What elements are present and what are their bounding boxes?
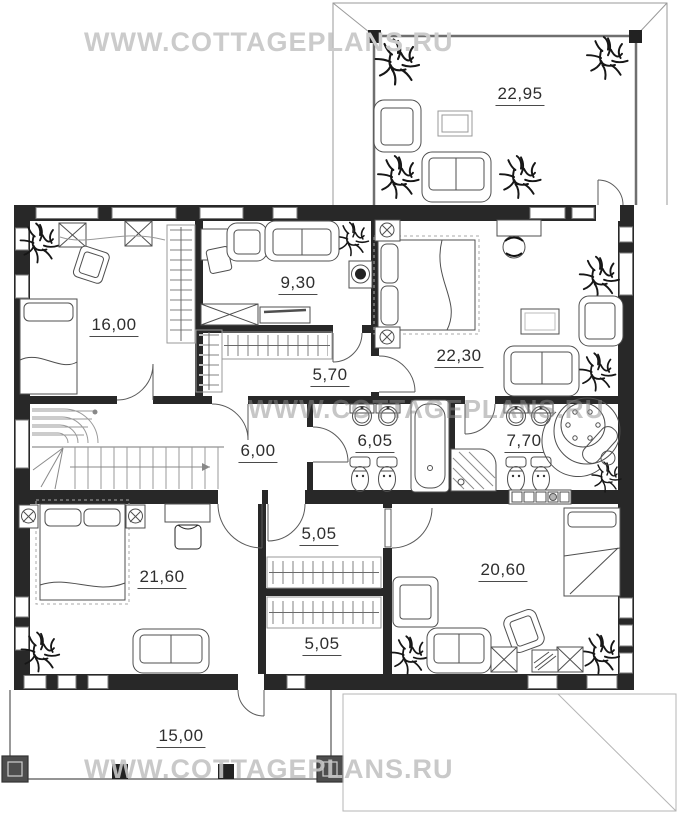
sofa-symbol [265,221,339,261]
room-area-label: 5,70 [310,365,349,387]
nightstand-symbol [375,220,400,241]
sofa-symbol [133,629,209,673]
plant-icon [592,462,621,492]
media-table-symbol [532,650,558,672]
tv-symbol [497,220,541,236]
stairs-symbol [32,409,224,489]
room-area-label: 20,60 [478,560,527,582]
door-bedroom-2 [218,504,262,548]
side-table-symbol [491,647,517,672]
garage-roof-outline [343,694,676,811]
desk-symbol [165,504,210,522]
coffee-table-symbol [438,111,472,136]
door-lower-terrace [238,690,264,716]
single-bed-symbol [20,299,77,394]
sofa-symbol [504,346,579,396]
armchair-symbol [579,296,623,346]
toilet-symbol [350,457,370,492]
hanger-rail [222,332,332,359]
armchair-symbol [374,100,421,152]
hanger-rail [267,597,381,628]
toilet-symbol [377,457,397,492]
floor-plan: 22,95 16,00 9,30 22,30 5,70 6,00 6,05 7,… [0,0,677,813]
watermark-text: WWW.COTTAGEPLANS.RU [84,754,453,785]
room-area-label: 16,00 [89,315,138,337]
room-area-label: 7,70 [504,431,543,453]
room-area-label: 22,30 [434,346,483,368]
plant-icon [587,37,628,79]
room-area-label: 5,05 [302,634,341,656]
dresser-symbol [201,304,258,325]
tv-stand-symbol [260,307,310,323]
chair-symbol [175,525,201,549]
plant-icon [391,636,427,674]
plant-icon [500,156,541,198]
nightstand-symbol [126,505,145,528]
shower-symbol [451,449,496,491]
room-area-label: 5,05 [299,524,338,546]
chair-symbol [72,245,110,285]
toilet-symbol [506,457,526,492]
room-area-label: 6,00 [238,441,277,463]
door-bedroom-1 [117,364,153,400]
armchair-symbol [227,223,267,261]
side-table-symbol [557,647,583,672]
beanbag-chair-symbol [503,236,525,258]
nightstand-symbol [19,505,38,528]
room-area-label: 9,30 [278,273,317,295]
door-bedroom-3 [385,508,432,548]
door-hall [212,404,248,440]
toilet-symbol [531,457,551,492]
stove-symbol [349,261,372,288]
plant-icon [582,635,620,674]
door-bathroom-1 [313,427,348,462]
double-bed-symbol [36,500,129,604]
door-wardrobe-1 [333,333,362,362]
hanger-rail [267,557,381,588]
plant-icon [337,223,369,256]
room-area-label: 15,00 [156,726,205,748]
hanger-rail [167,225,195,343]
terrace-post [2,756,28,782]
coffee-table-symbol [521,309,559,334]
vent-grille-symbol [509,490,571,504]
double-bed-symbol [374,236,479,334]
watermark-text: WWW.COTTAGEPLANS.RU [84,27,453,58]
plant-icon [580,257,619,298]
room-area-label: 22,95 [495,84,544,106]
nightstand-symbol [375,327,400,348]
side-table-symbol [59,223,86,247]
single-bed-symbol [564,508,620,596]
sofa-symbol [422,152,491,202]
sofa-symbol [427,628,491,673]
door-master-bedroom [379,356,415,392]
room-area-label: 21,60 [137,567,186,589]
plant-icon [579,353,615,391]
door-upper-terrace [598,180,623,205]
couch-symbol [393,577,438,627]
terrace-post [629,30,642,43]
side-table-symbol [125,221,152,246]
room-area-label: 6,05 [355,431,394,453]
plant-icon [378,156,419,198]
watermark-text: WWW.COTTAGEPLANS.RU [248,394,604,425]
